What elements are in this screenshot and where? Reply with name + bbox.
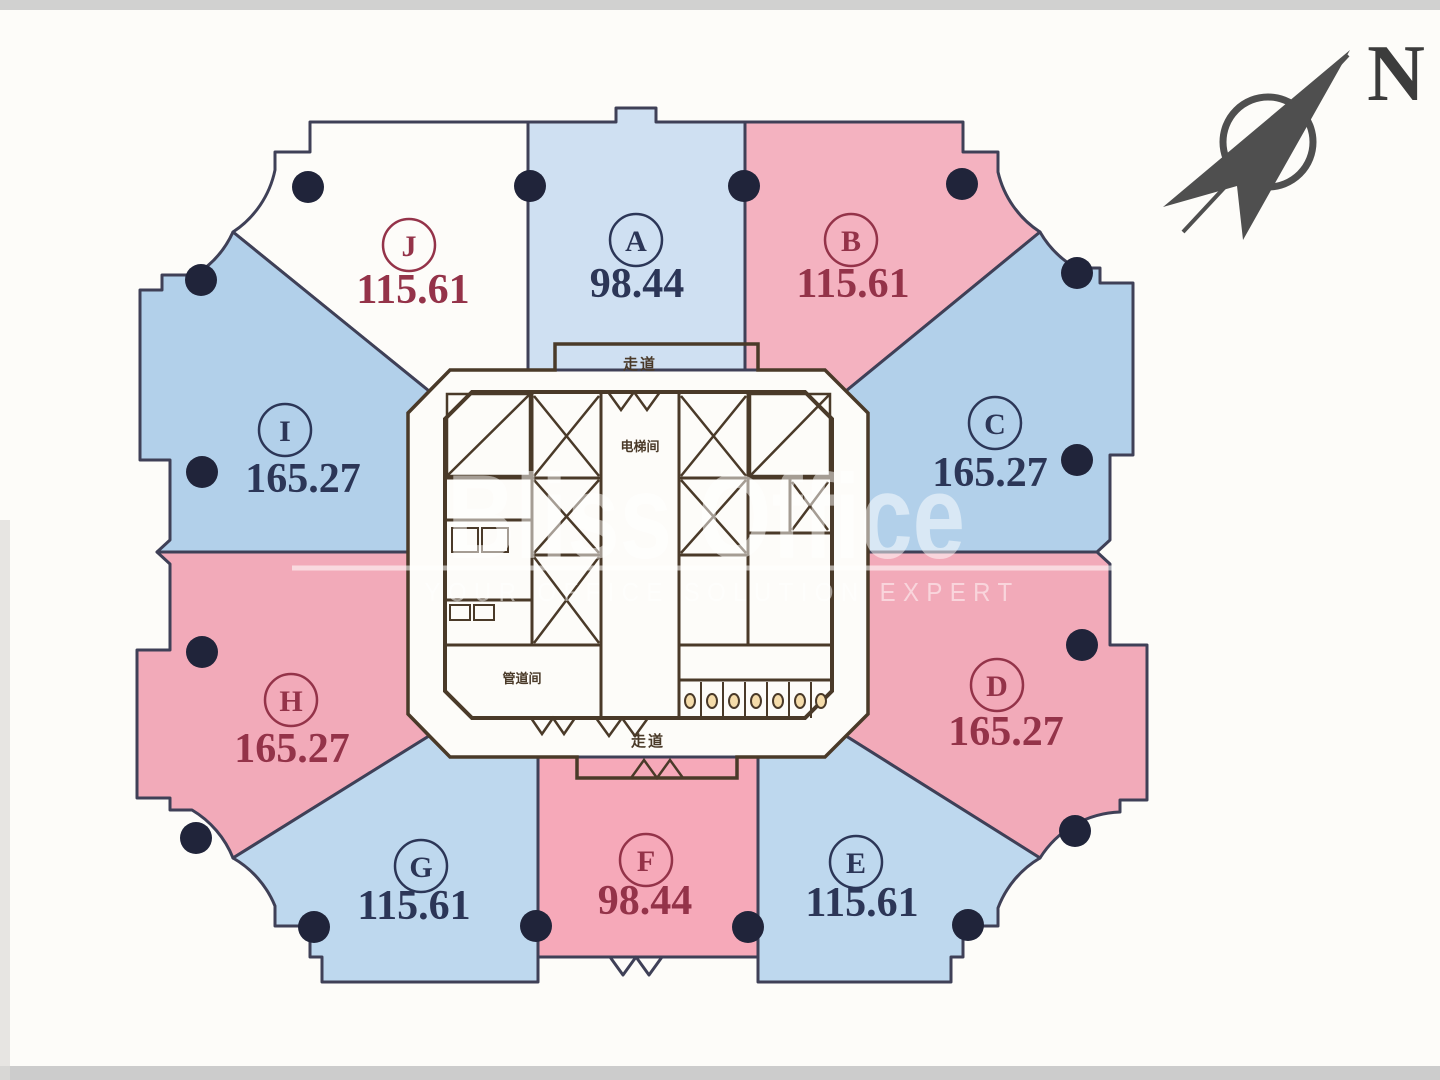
unit-area-D: 165.27 xyxy=(948,709,1064,755)
unit-letter-J: J xyxy=(402,230,417,263)
column-dot xyxy=(732,911,764,943)
column-dot xyxy=(186,456,218,488)
watermark-brand: Bliss Office xyxy=(447,450,965,584)
label-corridor-top: 走道 xyxy=(623,355,657,373)
column-dot xyxy=(946,168,978,200)
north-label: N xyxy=(1367,30,1425,118)
unit-area-A: 98.44 xyxy=(590,261,685,307)
column-dot xyxy=(1059,815,1091,847)
column-dot xyxy=(520,910,552,942)
watermark-tagline: YOUR OFFICE SOLUTION EXPERT xyxy=(425,577,1020,607)
unit-letter-H: H xyxy=(279,685,302,718)
column-dot xyxy=(1066,629,1098,661)
unit-area-G: 115.61 xyxy=(357,883,470,929)
edge-band-top xyxy=(0,0,1440,10)
column-dot xyxy=(514,170,546,202)
edge-band-bottom xyxy=(0,1066,1440,1080)
label-duct-room: 管道间 xyxy=(502,671,541,686)
unit-letter-B: B xyxy=(841,225,861,258)
column-dot xyxy=(1061,444,1093,476)
column-dot xyxy=(292,171,324,203)
unit-letter-C: C xyxy=(984,408,1006,441)
unit-letter-D: D xyxy=(986,670,1008,703)
column-dot xyxy=(185,264,217,296)
column-dot xyxy=(728,170,760,202)
unit-letter-E: E xyxy=(846,847,866,880)
unit-area-B: 115.61 xyxy=(796,261,909,307)
unit-letter-A: A xyxy=(625,225,647,258)
unit-area-F: 98.44 xyxy=(598,878,693,924)
column-dot xyxy=(186,636,218,668)
unit-area-E: 115.61 xyxy=(805,880,918,926)
unit-letter-I: I xyxy=(279,415,291,448)
column-dot xyxy=(298,911,330,943)
unit-letter-F: F xyxy=(637,845,655,878)
unit-area-J: 115.61 xyxy=(356,267,469,313)
unit-area-I: 165.27 xyxy=(245,456,361,502)
column-dot xyxy=(1061,257,1093,289)
label-corridor-bottom: 走道 xyxy=(631,732,665,750)
unit-area-H: 165.27 xyxy=(234,726,350,772)
floor-plan-canvas: 走道 电梯间 管道间 走道 J 115.61 A 98.44 B 115.61 … xyxy=(0,0,1440,1080)
column-dot xyxy=(180,822,212,854)
edge-band-left xyxy=(0,520,10,1080)
column-dot xyxy=(952,909,984,941)
unit-letter-G: G xyxy=(409,851,432,884)
